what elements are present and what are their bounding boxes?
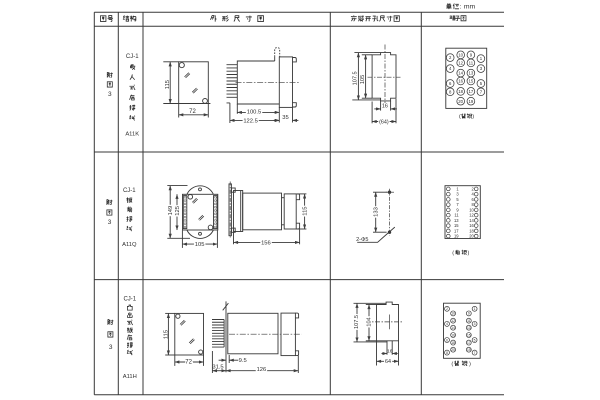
svg-text:35: 35 <box>282 115 288 121</box>
svg-text:105: 105 <box>360 75 366 84</box>
svg-text:9: 9 <box>470 52 473 57</box>
svg-text:13: 13 <box>469 71 474 76</box>
svg-text:10: 10 <box>458 52 463 57</box>
svg-text:18: 18 <box>469 228 474 233</box>
svg-text:1: 1 <box>456 186 459 191</box>
svg-text:6: 6 <box>446 338 448 342</box>
svg-text:1: 1 <box>480 56 483 61</box>
svg-text:): ) <box>467 250 469 256</box>
svg-text:4: 4 <box>446 322 448 326</box>
svg-text:CJ-1: CJ-1 <box>123 297 136 303</box>
svg-text:(: ( <box>459 114 461 120</box>
svg-text:A11K: A11K <box>125 132 139 138</box>
svg-text:12: 12 <box>469 213 474 218</box>
svg-text:104: 104 <box>367 317 373 326</box>
svg-text:14: 14 <box>458 71 463 76</box>
svg-text:7: 7 <box>456 202 459 207</box>
svg-text::: : <box>460 4 462 11</box>
svg-text:17: 17 <box>467 341 471 345</box>
svg-text:A11Q: A11Q <box>122 242 137 248</box>
svg-text:11: 11 <box>454 213 459 218</box>
svg-text:3: 3 <box>108 91 112 98</box>
svg-text:115: 115 <box>302 206 308 215</box>
svg-text:5: 5 <box>456 197 459 202</box>
svg-text:115: 115 <box>165 80 171 89</box>
svg-text:8: 8 <box>449 89 452 94</box>
svg-text:105: 105 <box>195 242 205 248</box>
svg-text:16: 16 <box>382 104 388 110</box>
svg-text:115: 115 <box>163 330 169 339</box>
svg-text:3: 3 <box>108 219 112 226</box>
svg-text:17: 17 <box>454 228 459 233</box>
svg-text:19: 19 <box>467 348 471 352</box>
svg-text:11: 11 <box>469 60 474 65</box>
svg-text:19: 19 <box>469 99 474 104</box>
svg-text:31.5: 31.5 <box>212 365 223 371</box>
svg-text:13: 13 <box>454 218 459 223</box>
svg-text:125: 125 <box>175 206 181 216</box>
svg-text:14: 14 <box>469 218 474 223</box>
svg-text:5: 5 <box>474 338 476 342</box>
svg-text:20: 20 <box>451 348 455 352</box>
svg-text:14: 14 <box>451 326 455 330</box>
svg-text:20: 20 <box>458 99 463 104</box>
svg-text:2-Φ5: 2-Φ5 <box>356 237 368 243</box>
svg-text:15: 15 <box>467 333 471 337</box>
svg-text:3: 3 <box>474 322 476 326</box>
svg-text:6: 6 <box>449 81 452 86</box>
svg-text:16: 16 <box>387 349 393 355</box>
svg-text:72: 72 <box>185 360 192 366</box>
svg-text:3: 3 <box>480 66 483 71</box>
svg-text:16: 16 <box>451 333 455 337</box>
svg-text:122.5: 122.5 <box>243 118 258 124</box>
svg-text:CJ-1: CJ-1 <box>123 188 136 194</box>
svg-text:A11H: A11H <box>123 374 137 380</box>
svg-text:13: 13 <box>467 326 471 330</box>
svg-text:7: 7 <box>474 351 476 355</box>
svg-text:100.5: 100.5 <box>247 110 262 116</box>
svg-text:9: 9 <box>468 312 470 316</box>
svg-text:64: 64 <box>385 359 391 365</box>
svg-text:2: 2 <box>449 55 452 60</box>
svg-text:15: 15 <box>469 79 474 84</box>
svg-text:17: 17 <box>469 89 474 94</box>
svg-text:(64): (64) <box>379 119 389 125</box>
svg-text:8: 8 <box>446 351 448 355</box>
svg-text:11: 11 <box>467 319 471 323</box>
svg-text:133: 133 <box>374 207 380 217</box>
svg-text:18: 18 <box>458 89 463 94</box>
svg-text:19: 19 <box>454 234 459 239</box>
svg-text:(: ( <box>452 250 454 256</box>
svg-text:3: 3 <box>109 344 113 351</box>
svg-text:126: 126 <box>257 367 267 373</box>
svg-text:10: 10 <box>451 312 455 316</box>
svg-text:16: 16 <box>458 79 463 84</box>
svg-text:4: 4 <box>449 66 452 71</box>
svg-text:72: 72 <box>189 109 196 115</box>
svg-text:): ) <box>469 361 471 367</box>
svg-text:156: 156 <box>261 240 271 246</box>
svg-text:2: 2 <box>446 307 448 311</box>
svg-text:(: ( <box>451 361 453 367</box>
svg-text:CJ-1: CJ-1 <box>126 54 139 60</box>
svg-text:18: 18 <box>451 341 455 345</box>
svg-text:12: 12 <box>451 319 455 323</box>
svg-text:5: 5 <box>480 81 483 86</box>
svg-text:9.5: 9.5 <box>239 358 247 364</box>
svg-text:mm: mm <box>464 4 476 11</box>
svg-text:7: 7 <box>480 89 483 94</box>
svg-text:20: 20 <box>469 234 474 239</box>
svg-text:): ) <box>472 114 474 120</box>
svg-text:12: 12 <box>458 60 463 65</box>
svg-text:107.5: 107.5 <box>354 315 360 329</box>
svg-text:107.5: 107.5 <box>353 71 359 85</box>
svg-text:1: 1 <box>474 307 476 311</box>
svg-text:149: 149 <box>168 206 174 216</box>
